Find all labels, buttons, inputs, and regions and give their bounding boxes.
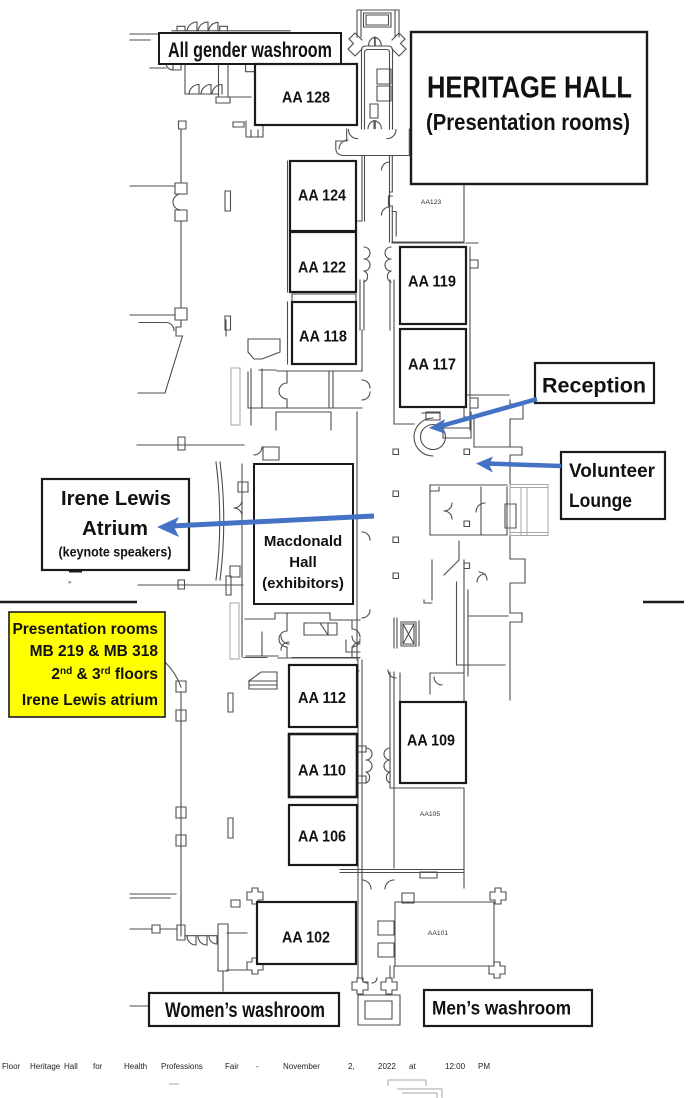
svg-text:Macdonald: Macdonald [264, 533, 342, 550]
svg-text:Heritage: Heritage [30, 1062, 61, 1071]
svg-text:2,: 2, [348, 1062, 355, 1071]
svg-text:Irene Lewis: Irene Lewis [61, 488, 171, 510]
svg-text:November: November [283, 1062, 320, 1071]
svg-text:(exhibitors): (exhibitors) [262, 575, 344, 592]
svg-text:at: at [409, 1062, 416, 1071]
svg-text:Women’s washroom: Women’s washroom [165, 999, 325, 1022]
svg-text:for: for [93, 1062, 103, 1071]
svg-text:AA 128: AA 128 [282, 90, 330, 107]
svg-text:Health: Health [124, 1062, 147, 1071]
svg-text:AA 102: AA 102 [282, 930, 330, 947]
svg-text:AA105: AA105 [420, 811, 441, 818]
svg-text:(Presentation rooms): (Presentation rooms) [426, 109, 630, 135]
svg-text:Fair: Fair [225, 1062, 239, 1071]
svg-text:AA 109: AA 109 [407, 733, 455, 750]
svg-text:Volunteer: Volunteer [569, 461, 656, 482]
svg-text:MB 219 & MB 318: MB 219 & MB 318 [30, 643, 159, 660]
svg-text:All gender washroom: All gender washroom [168, 39, 332, 62]
svg-text:AA 117: AA 117 [408, 357, 456, 374]
svg-text:AA101: AA101 [428, 930, 449, 937]
svg-text:Irene Lewis atrium: Irene Lewis atrium [22, 692, 158, 709]
svg-text:Professions: Professions [161, 1062, 203, 1071]
svg-text:(keynote speakers): (keynote speakers) [59, 544, 172, 560]
svg-text:12:00: 12:00 [445, 1062, 466, 1071]
svg-text:AA 119: AA 119 [408, 274, 456, 291]
svg-text:2022: 2022 [378, 1062, 396, 1071]
svg-text:AA 106: AA 106 [298, 829, 346, 846]
svg-text:AA 124: AA 124 [298, 188, 346, 205]
svg-text:AA 110: AA 110 [298, 763, 346, 780]
svg-text:Floor: Floor [2, 1062, 21, 1071]
svg-text:Presentation rooms: Presentation rooms [12, 621, 158, 638]
svg-text:Atrium: Atrium [82, 518, 148, 540]
svg-text:AA 122: AA 122 [298, 260, 346, 277]
svg-text:Lounge: Lounge [569, 491, 632, 512]
svg-text:Men’s washroom: Men’s washroom [432, 998, 571, 1020]
svg-text:Hall: Hall [64, 1062, 78, 1071]
svg-text:AA123: AA123 [421, 199, 442, 206]
svg-text:Hall: Hall [289, 554, 317, 571]
svg-text:Reception: Reception [542, 374, 646, 398]
svg-text:HERITAGE HALL: HERITAGE HALL [427, 70, 632, 105]
svg-text:AA 112: AA 112 [298, 690, 346, 707]
svg-text:-: - [256, 1062, 259, 1071]
svg-text:AA 118: AA 118 [299, 329, 347, 346]
svg-text:PM: PM [478, 1062, 490, 1071]
